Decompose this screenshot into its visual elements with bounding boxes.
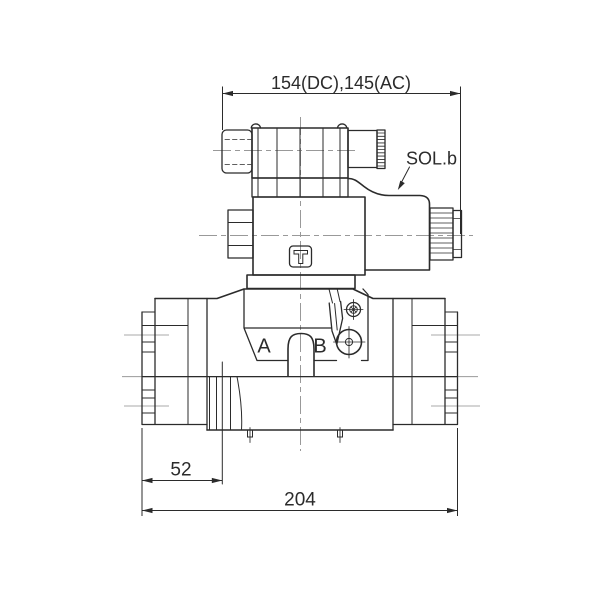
drawing-svg: 154(DC),145(AC) SOL.b [0, 0, 600, 600]
right-mounting-tabs [445, 312, 458, 413]
contact-face-stripes [377, 133, 385, 166]
detent-lever [329, 302, 342, 345]
dimension-arrow-left [223, 91, 234, 96]
dimension-arrow-right [450, 91, 461, 96]
port-label-a: A [257, 336, 271, 358]
arrow-52-left [142, 478, 153, 483]
hex-nut-chamfer-lines [228, 223, 253, 246]
top-dimension-text: 154(DC),145(AC) [271, 73, 411, 93]
port-face-plates [210, 377, 231, 430]
solenoid-body-right [348, 179, 430, 271]
pivot-crosshair [334, 327, 366, 359]
sol-b-leader-arrow [398, 181, 405, 190]
right-end-cap [393, 299, 458, 431]
casting-curve [237, 377, 242, 430]
solenoid-tube [348, 131, 377, 168]
arrow-204-left [142, 508, 153, 513]
port-label-b: B [313, 336, 326, 358]
detent-mechanism [329, 289, 365, 358]
left-mounting-tabs [142, 312, 155, 413]
knob-knurling [430, 213, 453, 253]
dimension-text-204: 204 [284, 490, 316, 511]
arrow-52-right [212, 478, 223, 483]
coil-internal-lines [258, 128, 340, 178]
sol-b-label: SOL.b [406, 149, 457, 169]
valve-technical-drawing: 154(DC),145(AC) SOL.b [0, 0, 600, 600]
lever-inner-line [335, 304, 338, 331]
manual-override-knob [430, 208, 453, 260]
set-screw-cross [344, 300, 363, 320]
hex-nut [228, 210, 253, 258]
lever-slot [329, 289, 340, 303]
dimension-text-52: 52 [170, 460, 191, 481]
arrow-204-right [447, 508, 458, 513]
electrical-connector [222, 130, 252, 173]
sol-b-callout: SOL.b [398, 149, 457, 191]
bracket-internal-lines [258, 178, 340, 197]
left-end-cap [142, 299, 207, 431]
port-labels: A B [257, 336, 326, 358]
offset-dimension-52: 52 [142, 428, 222, 516]
